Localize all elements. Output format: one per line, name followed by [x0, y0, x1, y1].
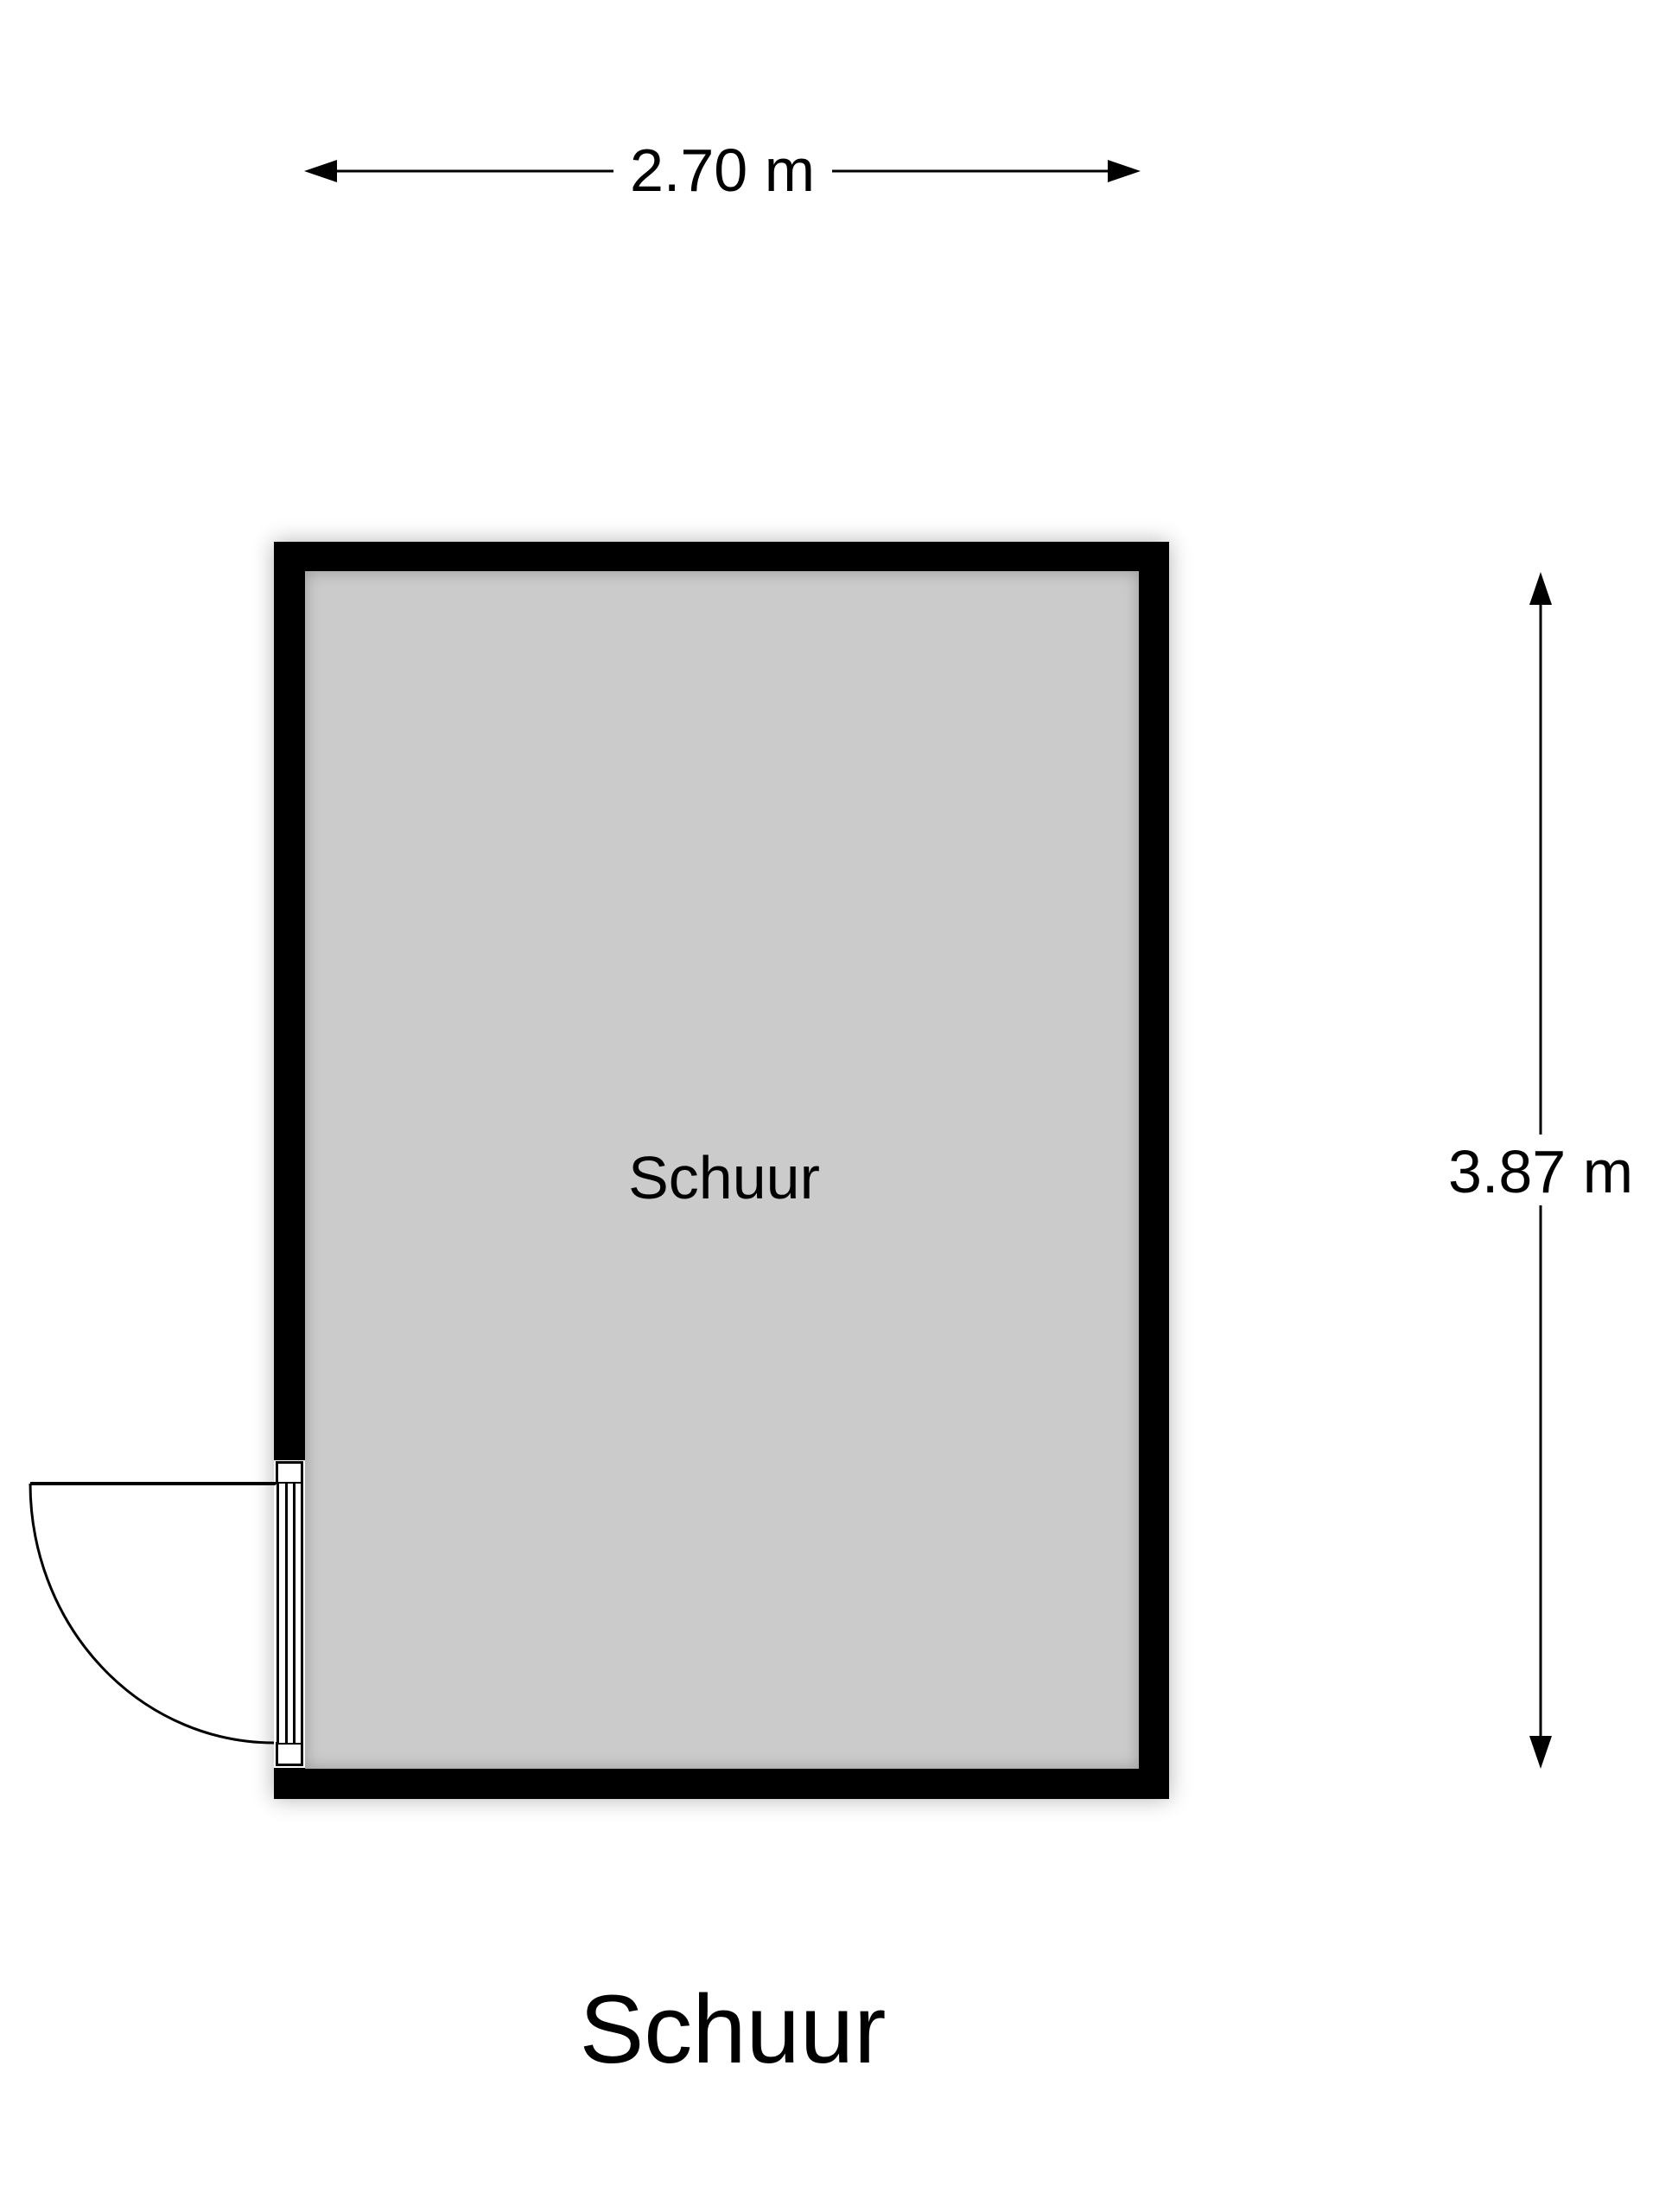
height-dimension-label: 3.87 m: [1448, 1141, 1633, 1202]
door-threshold-line: [293, 1484, 296, 1743]
arrow-right-icon: [1108, 160, 1141, 182]
room-label: Schuur: [628, 1147, 820, 1208]
arrow-left-icon: [304, 160, 337, 182]
arrow-up-icon: [1529, 572, 1552, 605]
arrow-down-icon: [1529, 1736, 1552, 1769]
room-schuur: Schuur: [274, 542, 1169, 1799]
floorplan-page: { "title": "Schuur", "room": { "label": …: [0, 0, 1659, 2212]
plan-title: Schuur: [580, 1981, 887, 2078]
door-swing-arc: [13, 1466, 289, 1760]
door-swing-path: [30, 1484, 274, 1743]
width-dimension-label: 2.70 m: [630, 140, 815, 200]
floorplan-canvas: 2.70 m Schuur 3.87 m Schuur: [0, 0, 1659, 2212]
